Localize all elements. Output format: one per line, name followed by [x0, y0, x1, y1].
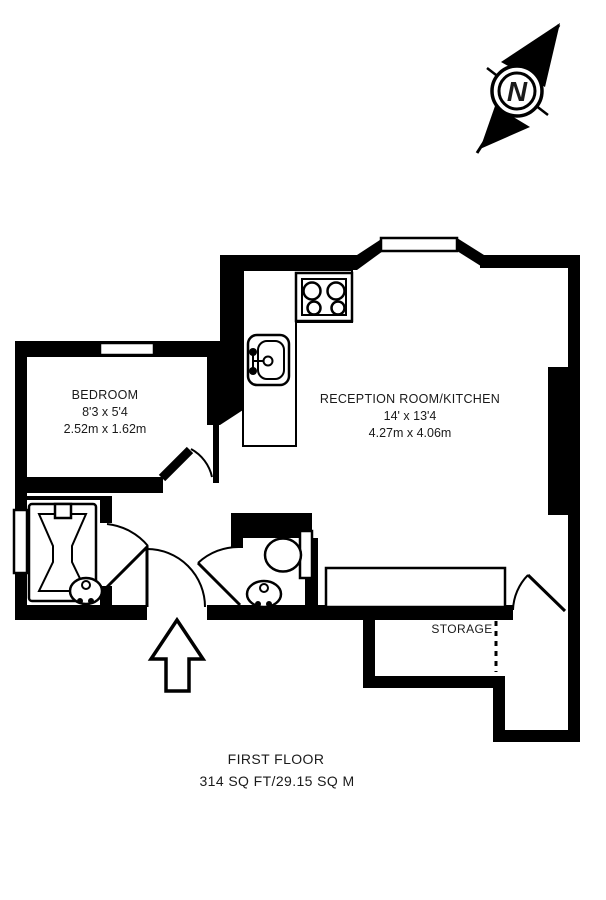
reception-dims-imperial: 14' x 13'4 — [384, 409, 437, 423]
storage-label: STORAGE — [431, 622, 492, 636]
entrance-arrow-icon — [151, 620, 203, 691]
stove-hob-icon — [296, 273, 352, 321]
kitchen-sink-icon — [248, 335, 289, 385]
bedroom-door — [162, 449, 212, 478]
kitchen-unit — [326, 568, 505, 607]
compass-n-label: N — [507, 76, 528, 107]
bathroom-door — [106, 524, 148, 588]
reception-rear-door — [513, 575, 565, 611]
bedroom-dims-metric: 2.52m x 1.62m — [64, 422, 147, 436]
bedroom-label: BEDROOM — [72, 388, 139, 402]
toilet-icon — [265, 531, 312, 578]
floor-area: 314 SQ FT/29.15 SQ M — [199, 773, 354, 789]
entrance-door — [147, 549, 205, 607]
bathroom-window — [14, 510, 27, 573]
floorplan-drawing: N — [0, 0, 606, 900]
footer-labels: FIRST FLOOR 314 SQ FT/29.15 SQ M — [199, 751, 354, 789]
floorplan-page: N — [0, 0, 606, 900]
compass-north-icon: N — [477, 23, 560, 153]
reception-label: RECEPTION ROOM/KITCHEN — [320, 392, 500, 406]
bedroom-window — [100, 343, 154, 355]
bay-window — [381, 238, 457, 251]
bathroom-basin-icon — [70, 578, 102, 604]
reception-dims-metric: 4.27m x 4.06m — [369, 426, 452, 440]
bedroom-dims-imperial: 8'3 x 5'4 — [82, 405, 128, 419]
floor-title: FIRST FLOOR — [228, 751, 325, 767]
wc-basin-icon — [247, 581, 281, 607]
